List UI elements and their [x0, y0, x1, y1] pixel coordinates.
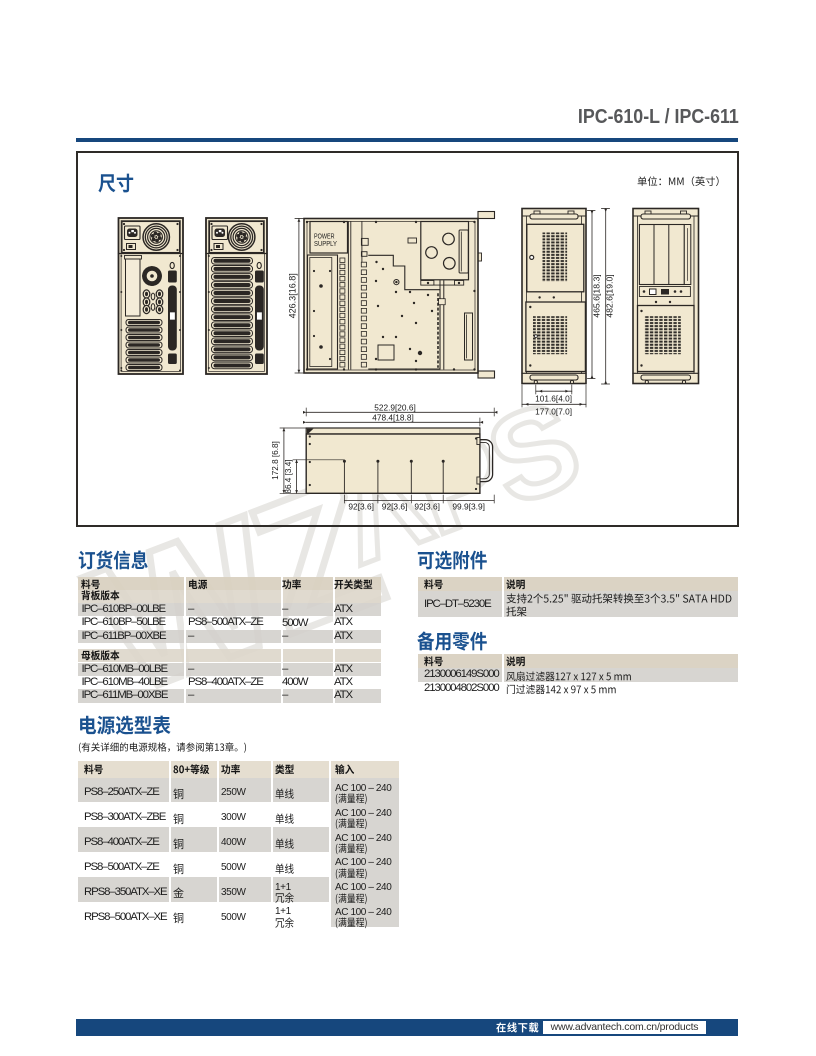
svg-text:99.9[3.9]: 99.9[3.9] — [452, 501, 485, 511]
svg-text:522.9[20.6]: 522.9[20.6] — [374, 402, 416, 412]
svg-text:101.6[4.0]: 101.6[4.0] — [535, 394, 572, 404]
svg-text:177.0[7.0]: 177.0[7.0] — [535, 407, 572, 417]
svg-text:482.6[19.0]: 482.6[19.0] — [605, 274, 615, 317]
svg-text:465.6[18.3]: 465.6[18.3] — [592, 274, 602, 317]
svg-text:478.4[18.8]: 478.4[18.8] — [372, 413, 414, 423]
svg-text:426.3[16.8]: 426.3[16.8] — [288, 273, 298, 318]
svg-text:86.4 [3.4]: 86.4 [3.4] — [284, 459, 293, 493]
svg-text:172.8 [6.8]: 172.8 [6.8] — [271, 441, 280, 480]
svg-text:SUPPLY: SUPPLY — [314, 241, 337, 248]
svg-text:POWER: POWER — [314, 234, 335, 241]
svg-text:92[3.6]: 92[3.6] — [414, 501, 440, 511]
svg-text:92[3.6]: 92[3.6] — [348, 501, 374, 511]
svg-text:92[3.6]: 92[3.6] — [382, 501, 408, 511]
